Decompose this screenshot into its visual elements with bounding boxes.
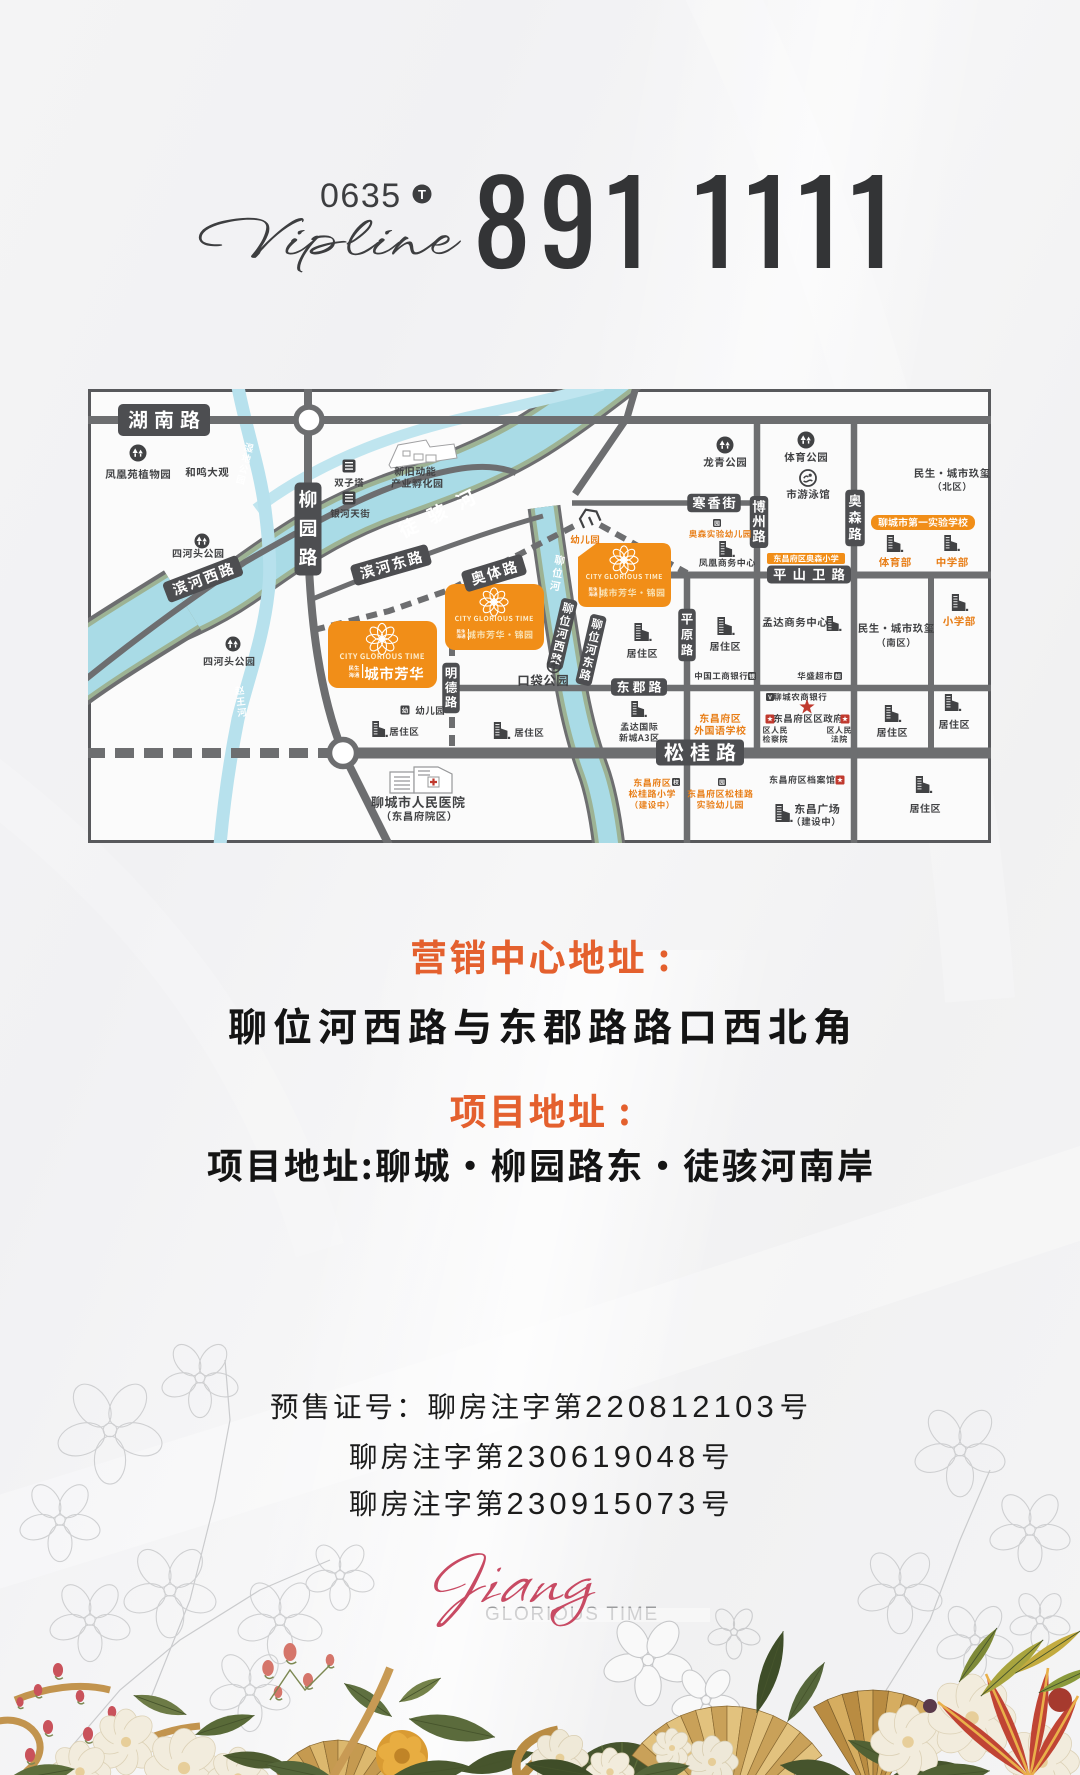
svg-text:T: T [418,187,426,202]
svg-text:0635: 0635 [320,177,402,215]
